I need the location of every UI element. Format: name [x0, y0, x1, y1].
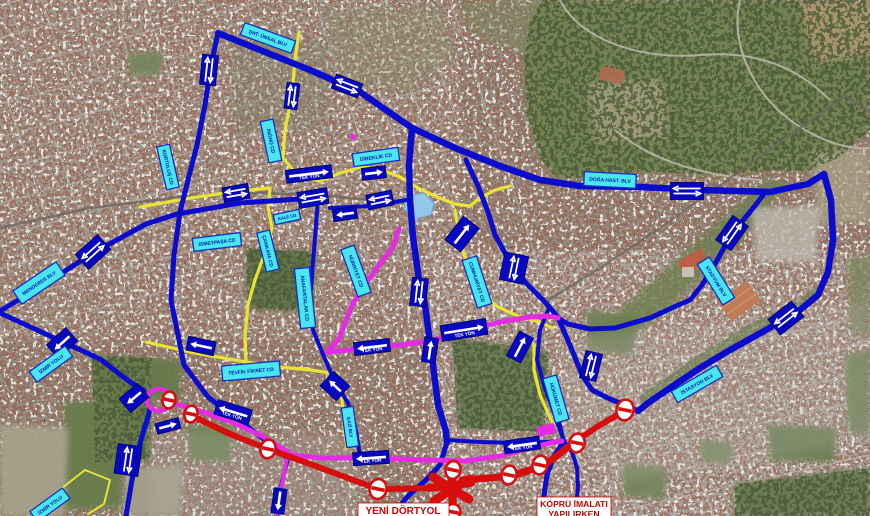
svg-text:YAPILIRKEN: YAPILIRKEN	[548, 509, 599, 516]
svg-text:KÖPRÜ İMALATI: KÖPRÜ İMALATI	[540, 499, 608, 509]
svg-text:YENİ DÖRTYOL: YENİ DÖRTYOL	[365, 504, 440, 516]
